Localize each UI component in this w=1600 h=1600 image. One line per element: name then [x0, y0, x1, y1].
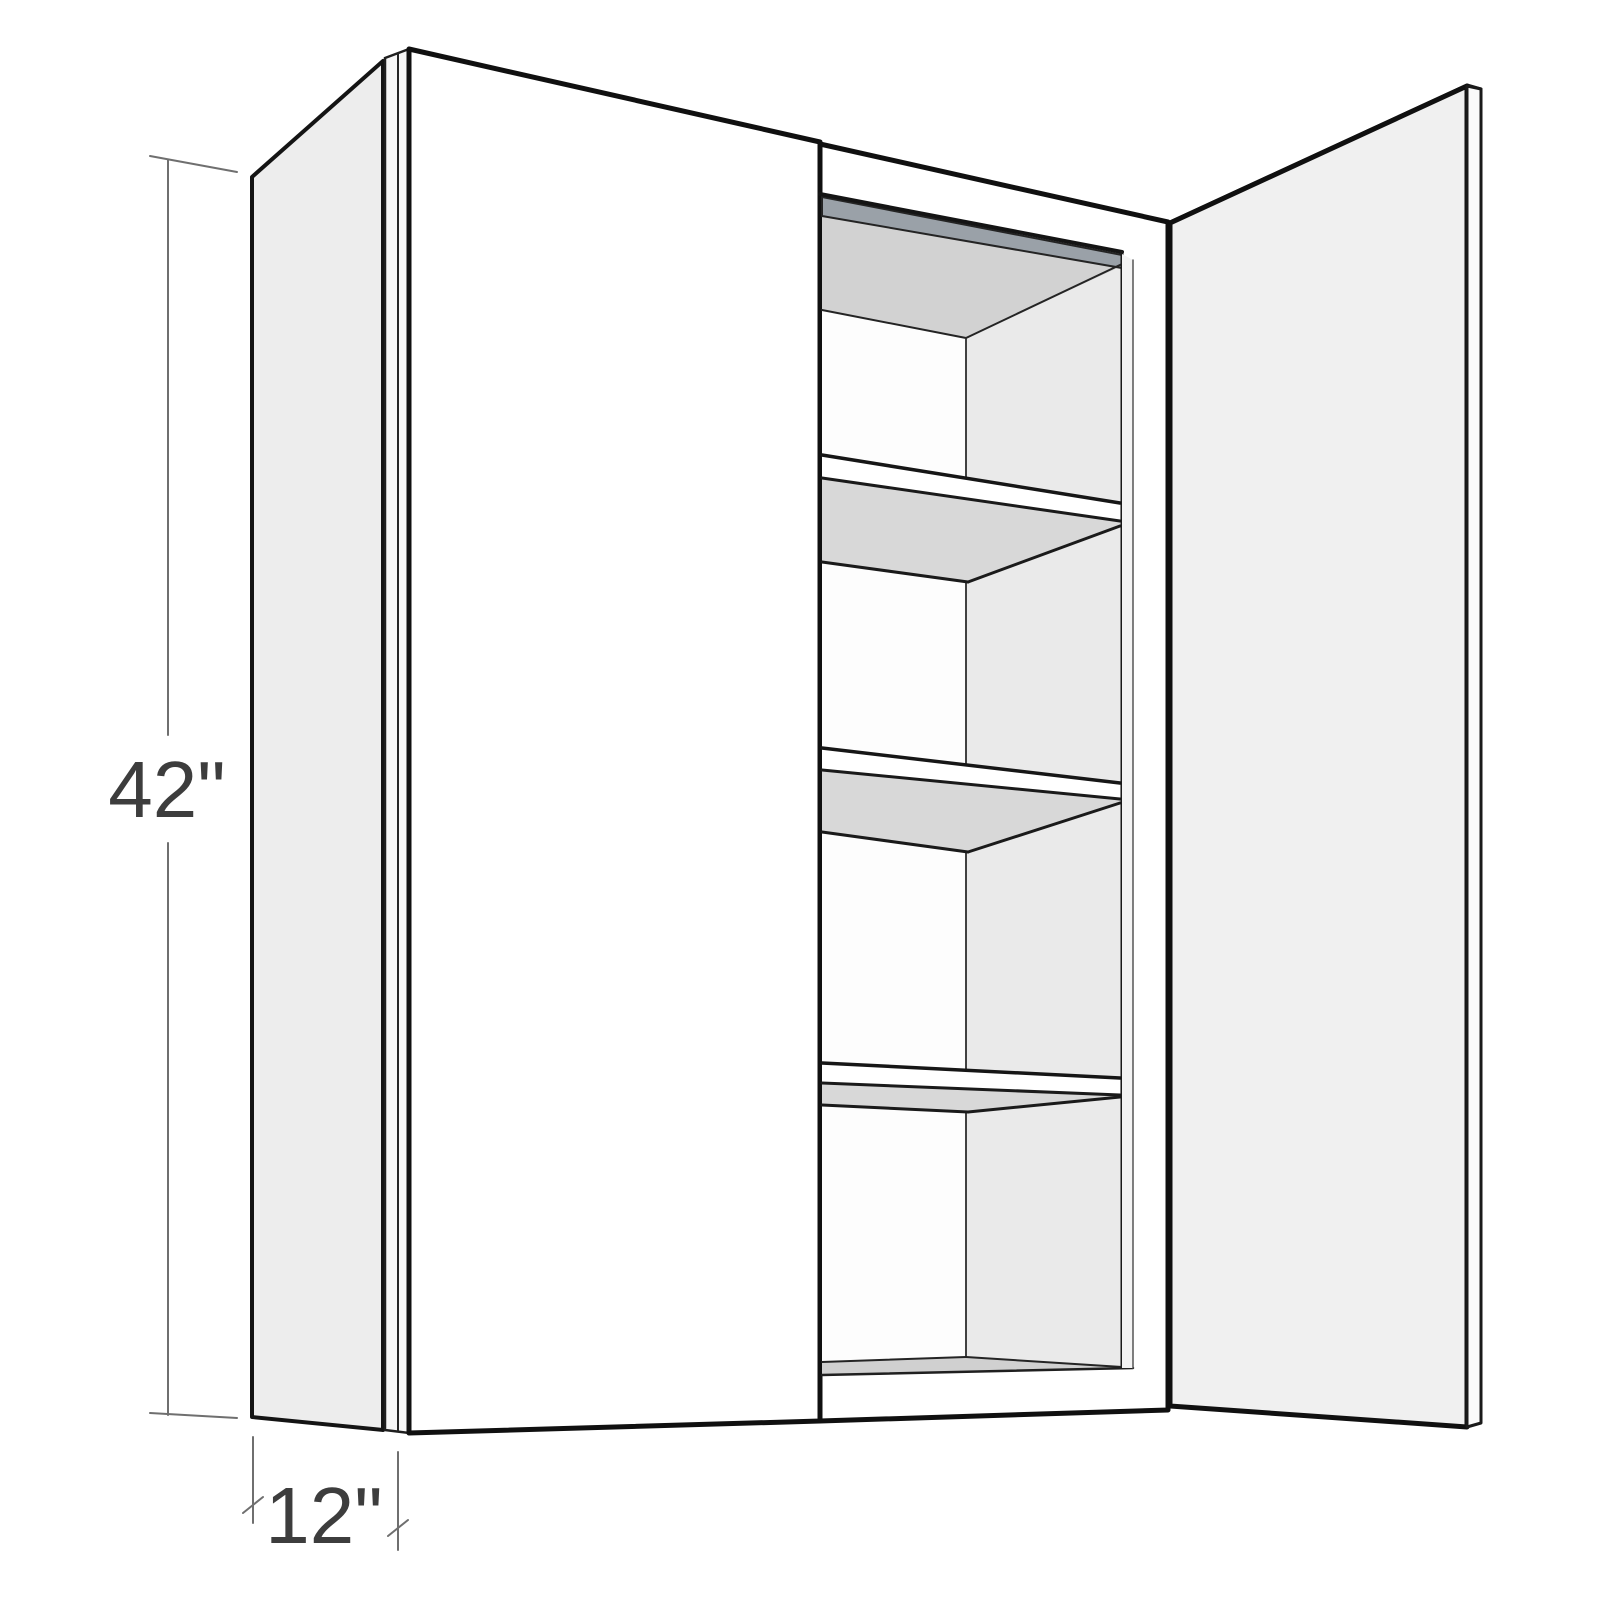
height-dimension-label: 42" [108, 745, 225, 834]
right-return-sliver [1122, 254, 1133, 1368]
open-door-right-edge [1467, 86, 1481, 1427]
cabinet [252, 49, 1481, 1433]
height-extension-bottom-tick [150, 1413, 237, 1418]
height-extension-top-tick [150, 156, 237, 172]
cabinet-interior [820, 194, 1133, 1375]
open-door [1170, 85, 1481, 1427]
closed-door [409, 49, 820, 1433]
depth-dimension-label: 12" [265, 1471, 382, 1560]
cabinet-dimension-drawing: 42" 12" [0, 0, 1600, 1600]
left-side-panel [252, 61, 383, 1430]
open-door-inner-face [1170, 86, 1467, 1427]
